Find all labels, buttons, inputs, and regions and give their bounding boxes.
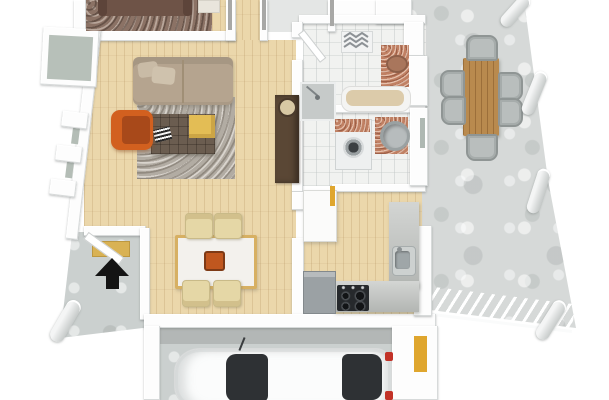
utility-basin <box>380 121 410 151</box>
towel-radiator <box>341 31 373 53</box>
hallway-floor <box>234 0 262 41</box>
window-sill <box>61 110 89 129</box>
entrance-arrow-stem <box>106 276 119 289</box>
bed <box>98 0 192 16</box>
exterior-wall <box>410 108 428 186</box>
garage-wall <box>144 326 160 400</box>
doorway <box>330 0 334 26</box>
garage-side-door <box>414 336 427 372</box>
doorway <box>262 0 266 30</box>
washer-door-icon <box>343 137 364 158</box>
wall <box>140 228 150 320</box>
shower <box>300 82 336 121</box>
window-sill <box>49 178 77 197</box>
sink-basin <box>395 251 410 269</box>
car-rear-window <box>342 354 382 400</box>
floor-plan-scene <box>0 0 609 400</box>
shower-head-icon <box>315 95 320 100</box>
dining-chair <box>185 213 213 239</box>
bathtub-interior <box>346 90 404 106</box>
window-sill <box>55 144 83 163</box>
doorway <box>228 0 232 30</box>
kitchen-door-frame <box>330 186 335 206</box>
outdoor-chair <box>440 70 465 99</box>
window-glass <box>420 118 425 148</box>
washing-machine-counter <box>335 119 370 132</box>
bed-armrest <box>98 0 107 16</box>
dining-chair <box>214 213 242 239</box>
bed-armrest <box>183 0 192 16</box>
dishwasher <box>303 271 336 314</box>
outdoor-chair <box>441 96 466 125</box>
side-table <box>198 0 220 13</box>
sofa-cushion-seam <box>182 60 184 103</box>
armchair-seat <box>122 116 150 144</box>
outdoor-dining-table <box>463 58 499 136</box>
entrance-arrow-icon <box>94 258 130 292</box>
sofa-pillow <box>151 66 176 85</box>
outdoor-chair <box>466 134 498 161</box>
throw-blanket <box>189 115 215 138</box>
vanity-sink-bowl <box>386 55 408 73</box>
car-taillight <box>385 352 393 361</box>
garage-back-wall <box>160 328 394 344</box>
cooktop <box>337 285 369 311</box>
table-centerpiece <box>204 251 225 271</box>
car-windshield <box>226 354 268 400</box>
outdoor-chair <box>498 72 523 101</box>
towel-radiator-icon <box>342 32 370 50</box>
outdoor-chair <box>466 35 498 61</box>
outdoor-chair <box>498 98 523 127</box>
dining-chair <box>182 280 210 307</box>
dining-chair <box>213 280 241 307</box>
clock-icon <box>278 98 297 117</box>
car-taillight <box>385 391 393 400</box>
window-glass <box>47 35 93 81</box>
faucet-icon <box>397 247 402 252</box>
entrance-arrow-head <box>95 258 129 276</box>
